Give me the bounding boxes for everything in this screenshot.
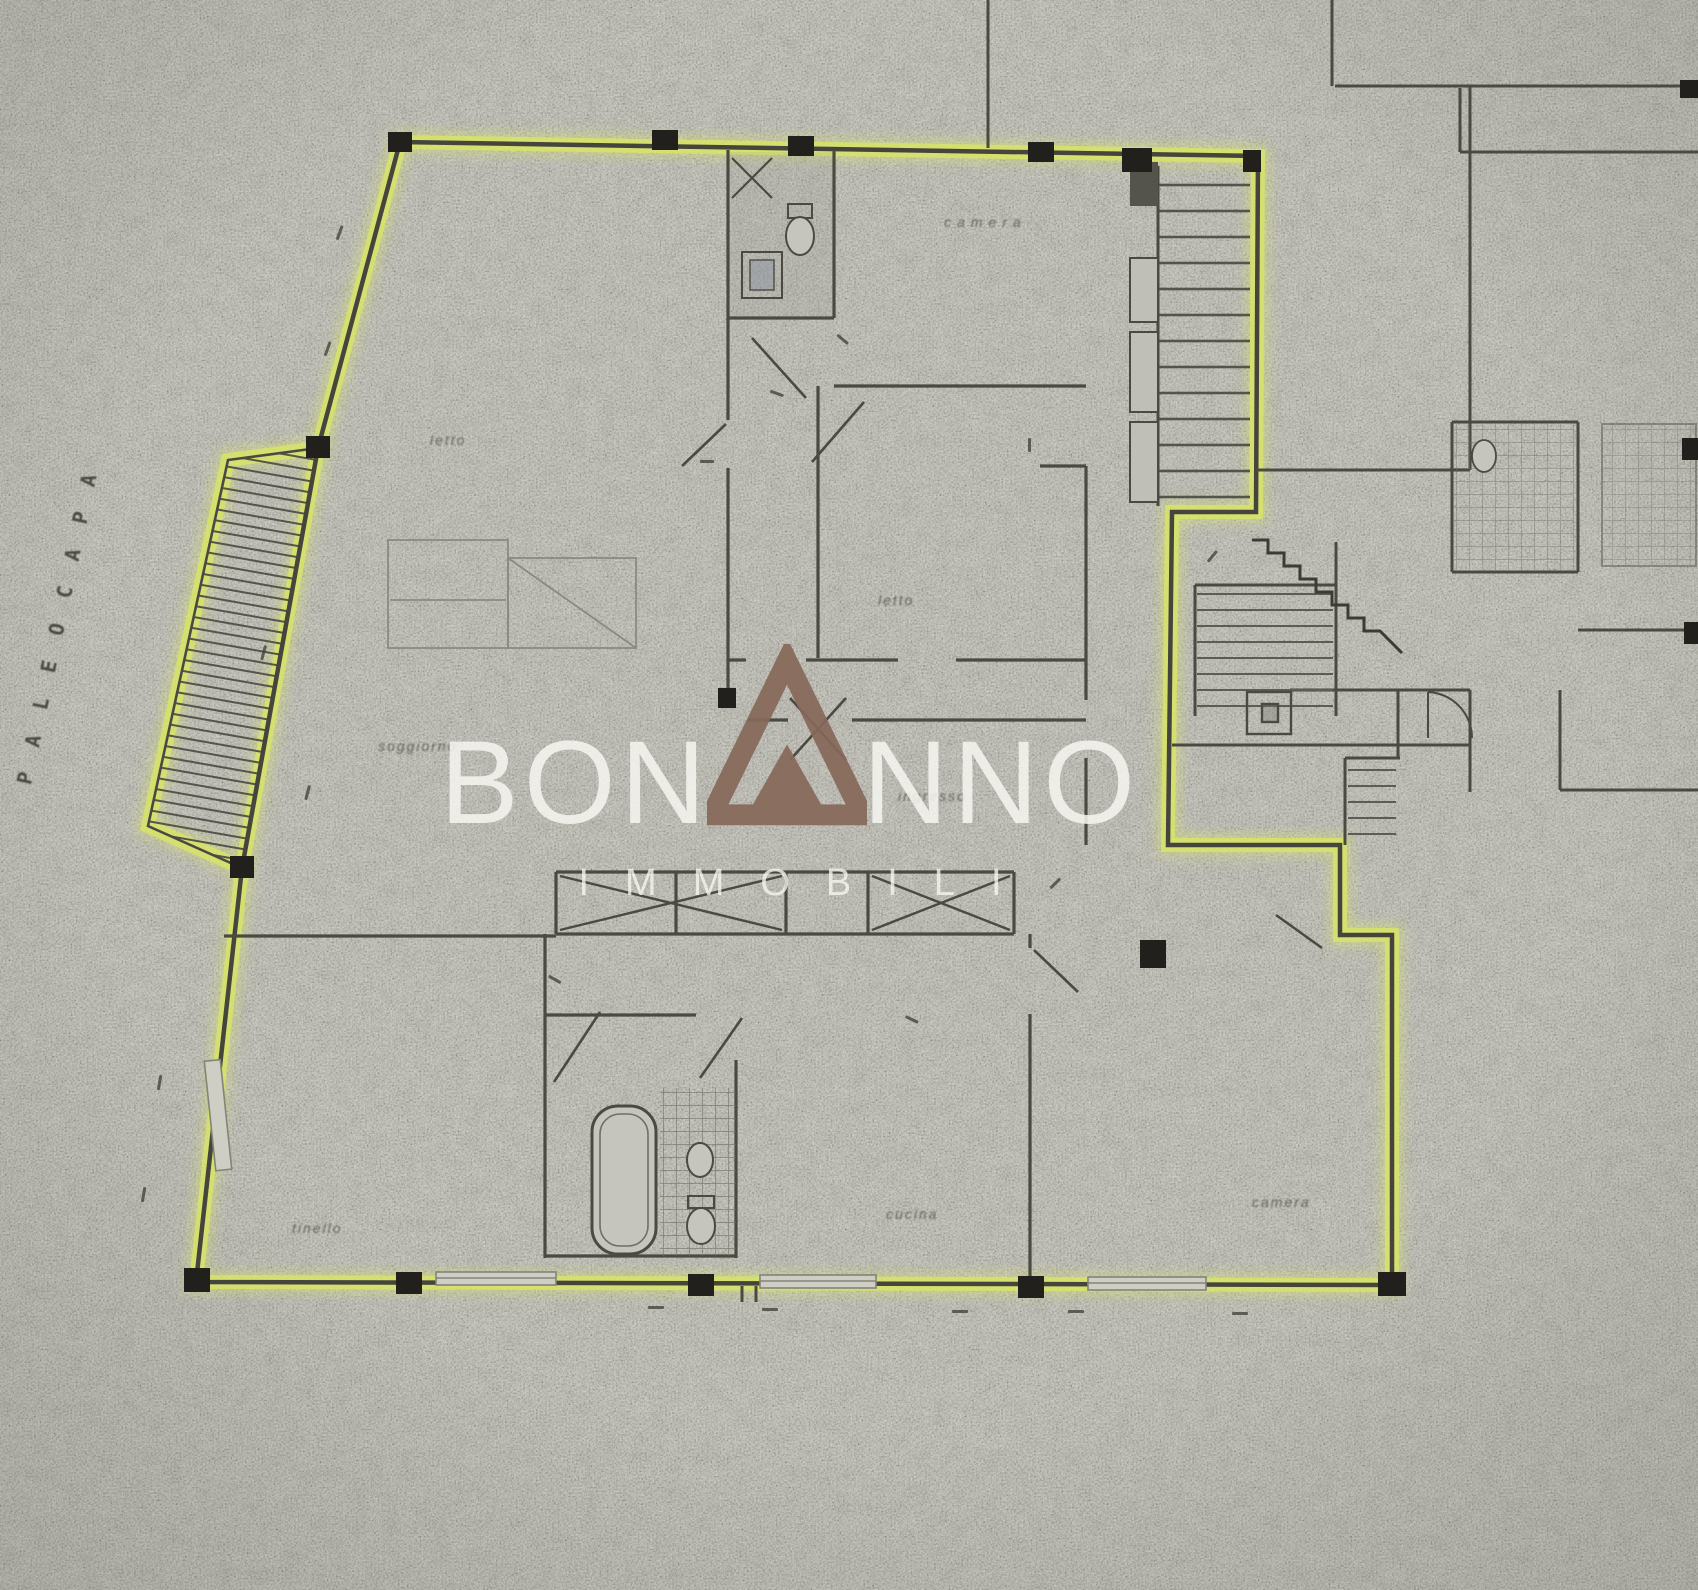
top-bathroom [730, 152, 832, 316]
room-label-smudge: ingresso [898, 788, 967, 804]
room-label-smudge: camera [1252, 1194, 1311, 1210]
room-label-smudge: letto [878, 592, 914, 608]
floor-plan-svg [0, 0, 1698, 1590]
room-label-smudge: tinello [292, 1220, 343, 1236]
room-label-smudge: letto [430, 432, 466, 448]
sink-icon [687, 1143, 713, 1177]
floorplan-scan: PALEOCAPA letto camera letto soggiorno i… [0, 0, 1698, 1590]
room-label-smudge: soggiorno [378, 738, 458, 754]
room-label-smudge: cucina [886, 1206, 938, 1222]
room-label-smudge: camera [944, 214, 1027, 230]
bottom-bathroom [592, 1088, 736, 1256]
